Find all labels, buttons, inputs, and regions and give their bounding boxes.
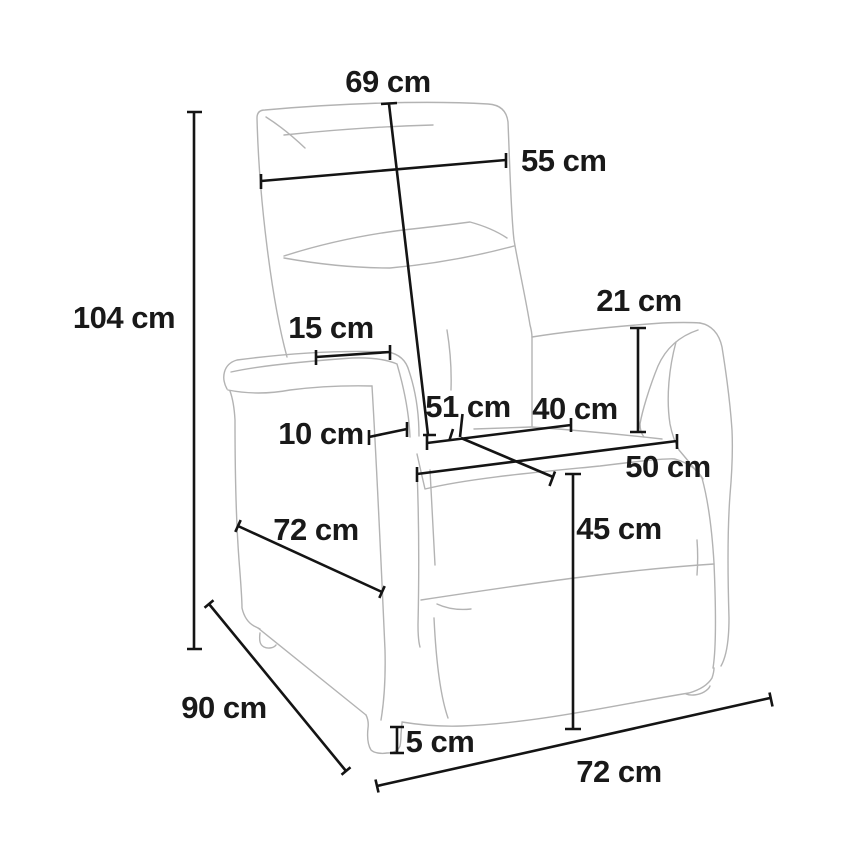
svg-text:15 cm: 15 cm: [288, 310, 373, 345]
svg-text:90 cm: 90 cm: [181, 690, 266, 725]
svg-text:55 cm: 55 cm: [521, 143, 606, 178]
svg-text:72 cm: 72 cm: [273, 512, 358, 547]
svg-text:69 cm: 69 cm: [345, 64, 430, 99]
svg-text:104 cm: 104 cm: [73, 300, 175, 335]
svg-text:51 cm: 51 cm: [425, 389, 510, 424]
svg-text:21 cm: 21 cm: [596, 283, 681, 318]
svg-text:50 cm: 50 cm: [625, 449, 710, 484]
svg-text:45 cm: 45 cm: [576, 511, 661, 546]
svg-text:10 cm: 10 cm: [278, 416, 363, 451]
svg-text:40 cm: 40 cm: [532, 391, 617, 426]
svg-text:5 cm: 5 cm: [406, 724, 475, 759]
svg-text:72 cm: 72 cm: [576, 754, 661, 789]
